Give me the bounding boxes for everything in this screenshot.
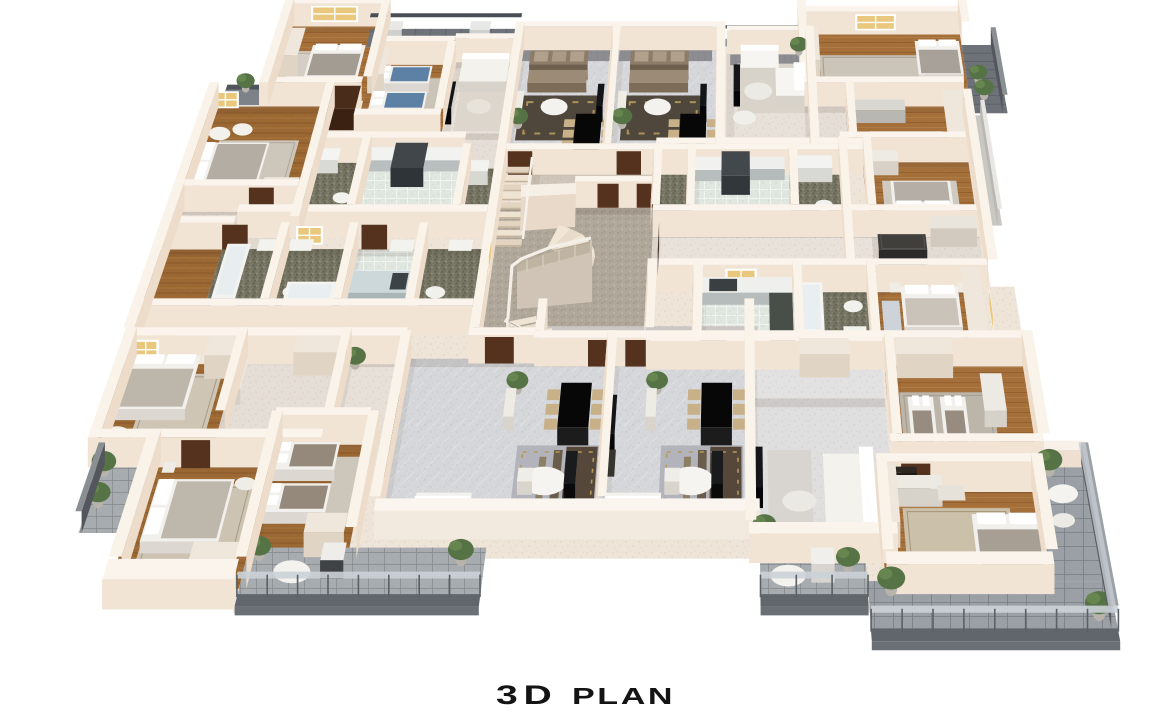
svg-text:3D: 3D — [496, 681, 558, 711]
svg-text:PLAN: PLAN — [572, 684, 675, 710]
